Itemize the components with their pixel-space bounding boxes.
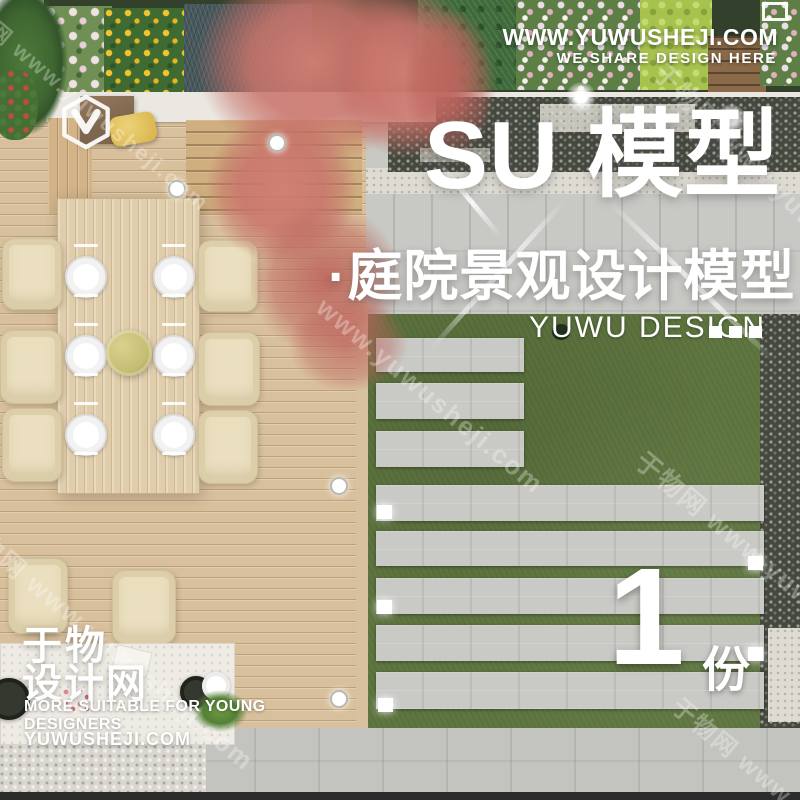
dinner-plate <box>153 335 195 377</box>
three-square-dots-icon <box>709 326 762 338</box>
sunflower-bed <box>104 8 192 92</box>
dinner-plate <box>65 256 107 298</box>
deck-light <box>268 134 286 152</box>
deck-light <box>330 690 348 708</box>
dining-chair <box>2 238 62 310</box>
lawn-square-light <box>377 600 392 614</box>
quantity-number: 1 <box>608 558 685 677</box>
lawn-square-light <box>377 505 392 519</box>
dining-chair <box>198 410 258 484</box>
right-stone-pad <box>768 628 800 722</box>
table-centerpiece <box>106 330 152 376</box>
dinner-plate <box>153 414 195 456</box>
hexagon-v-logo-icon <box>60 94 112 155</box>
tagline: WE SHARE DESIGN HERE <box>557 50 777 67</box>
dinner-plate <box>65 414 107 456</box>
poster-canvas: www.yuwusheji.com 于物网 www.yuwusheji.com … <box>0 0 800 800</box>
bottom-dark-strip <box>0 792 800 800</box>
footer-slogan-line1: MORE SUITABLE FOR YOUNG <box>24 698 266 716</box>
footer-website: YUWUSHEJI.COM <box>24 729 191 750</box>
concrete-plank <box>376 578 764 614</box>
dinner-plate <box>65 335 107 377</box>
square-dot <box>749 326 762 338</box>
lawn-square-light <box>748 647 763 661</box>
dining-chair <box>0 330 62 404</box>
dinner-plate <box>153 256 195 298</box>
dining-chair <box>198 332 260 406</box>
square-dot <box>729 326 742 338</box>
red-flower-shrub <box>0 70 38 140</box>
square-dot <box>709 326 722 338</box>
lawn-square-light <box>378 698 393 712</box>
poster-title: SU 模型 <box>424 106 781 207</box>
poster-subtitle: ·庭院景观设计模型 <box>328 231 795 311</box>
website-url: WWW.YUWUSHEJI.COM <box>502 24 778 51</box>
square-frame-icon <box>762 2 788 21</box>
dining-chair <box>2 408 62 482</box>
quantity-unit: 份 <box>702 630 750 700</box>
deck-light <box>330 477 348 495</box>
